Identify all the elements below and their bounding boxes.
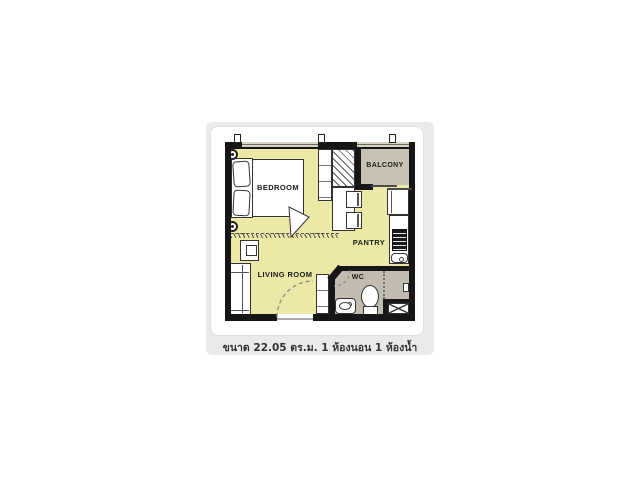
- bedroom-partition-line: [231, 233, 339, 238]
- closet-cabinet: [318, 149, 332, 201]
- living-room-label: LIVING ROOM: [256, 270, 314, 280]
- shower-partition: [383, 271, 385, 299]
- sofa-armrest-line: [231, 310, 249, 311]
- wall-bottom-right: [313, 314, 415, 321]
- toilet-bowl: [361, 285, 379, 308]
- sliding-door-panel: [387, 188, 412, 190]
- wall-left: [225, 142, 231, 321]
- balcony-railing: [357, 142, 409, 147]
- bedroom-window: [242, 142, 318, 147]
- sofa-armrest-line: [231, 272, 249, 273]
- wall-tick: [389, 134, 396, 143]
- sliding-door-panel: [371, 185, 397, 187]
- wall-wc-top: [338, 266, 415, 271]
- wardrobe: [332, 149, 355, 187]
- sofa: [229, 263, 251, 315]
- wc-label: WC: [346, 273, 370, 283]
- pillow: [232, 190, 250, 217]
- kitchen-sink: [391, 253, 408, 263]
- entry-console: [316, 274, 329, 314]
- side-table-top: [246, 245, 257, 256]
- unit-caption: ขนาด 22.05 ตร.ม. 1 ห้องนอน 1 ห้องน้ำ: [206, 339, 434, 356]
- stove: [392, 229, 407, 251]
- basin-bowl: [339, 302, 351, 310]
- wall-bottom-left: [225, 314, 277, 321]
- chair: [346, 191, 362, 208]
- bedroom-label: BEDROOM: [248, 183, 308, 193]
- balcony-label: BALCONY: [361, 161, 409, 171]
- wall-right: [409, 142, 415, 321]
- wall-tick: [234, 134, 241, 143]
- pantry-label: PANTRY: [344, 238, 394, 248]
- refrigerator: [387, 189, 409, 215]
- wall-shaft-left: [383, 299, 388, 321]
- wall-tick: [318, 134, 325, 143]
- chair: [346, 212, 362, 229]
- wall-wc-left: [329, 277, 335, 315]
- service-shaft: [388, 303, 409, 314]
- entrance-threshold: [277, 318, 313, 320]
- page: BEDROOM BALCONY PANTRY LIVING ROOM WC ขน…: [0, 0, 640, 480]
